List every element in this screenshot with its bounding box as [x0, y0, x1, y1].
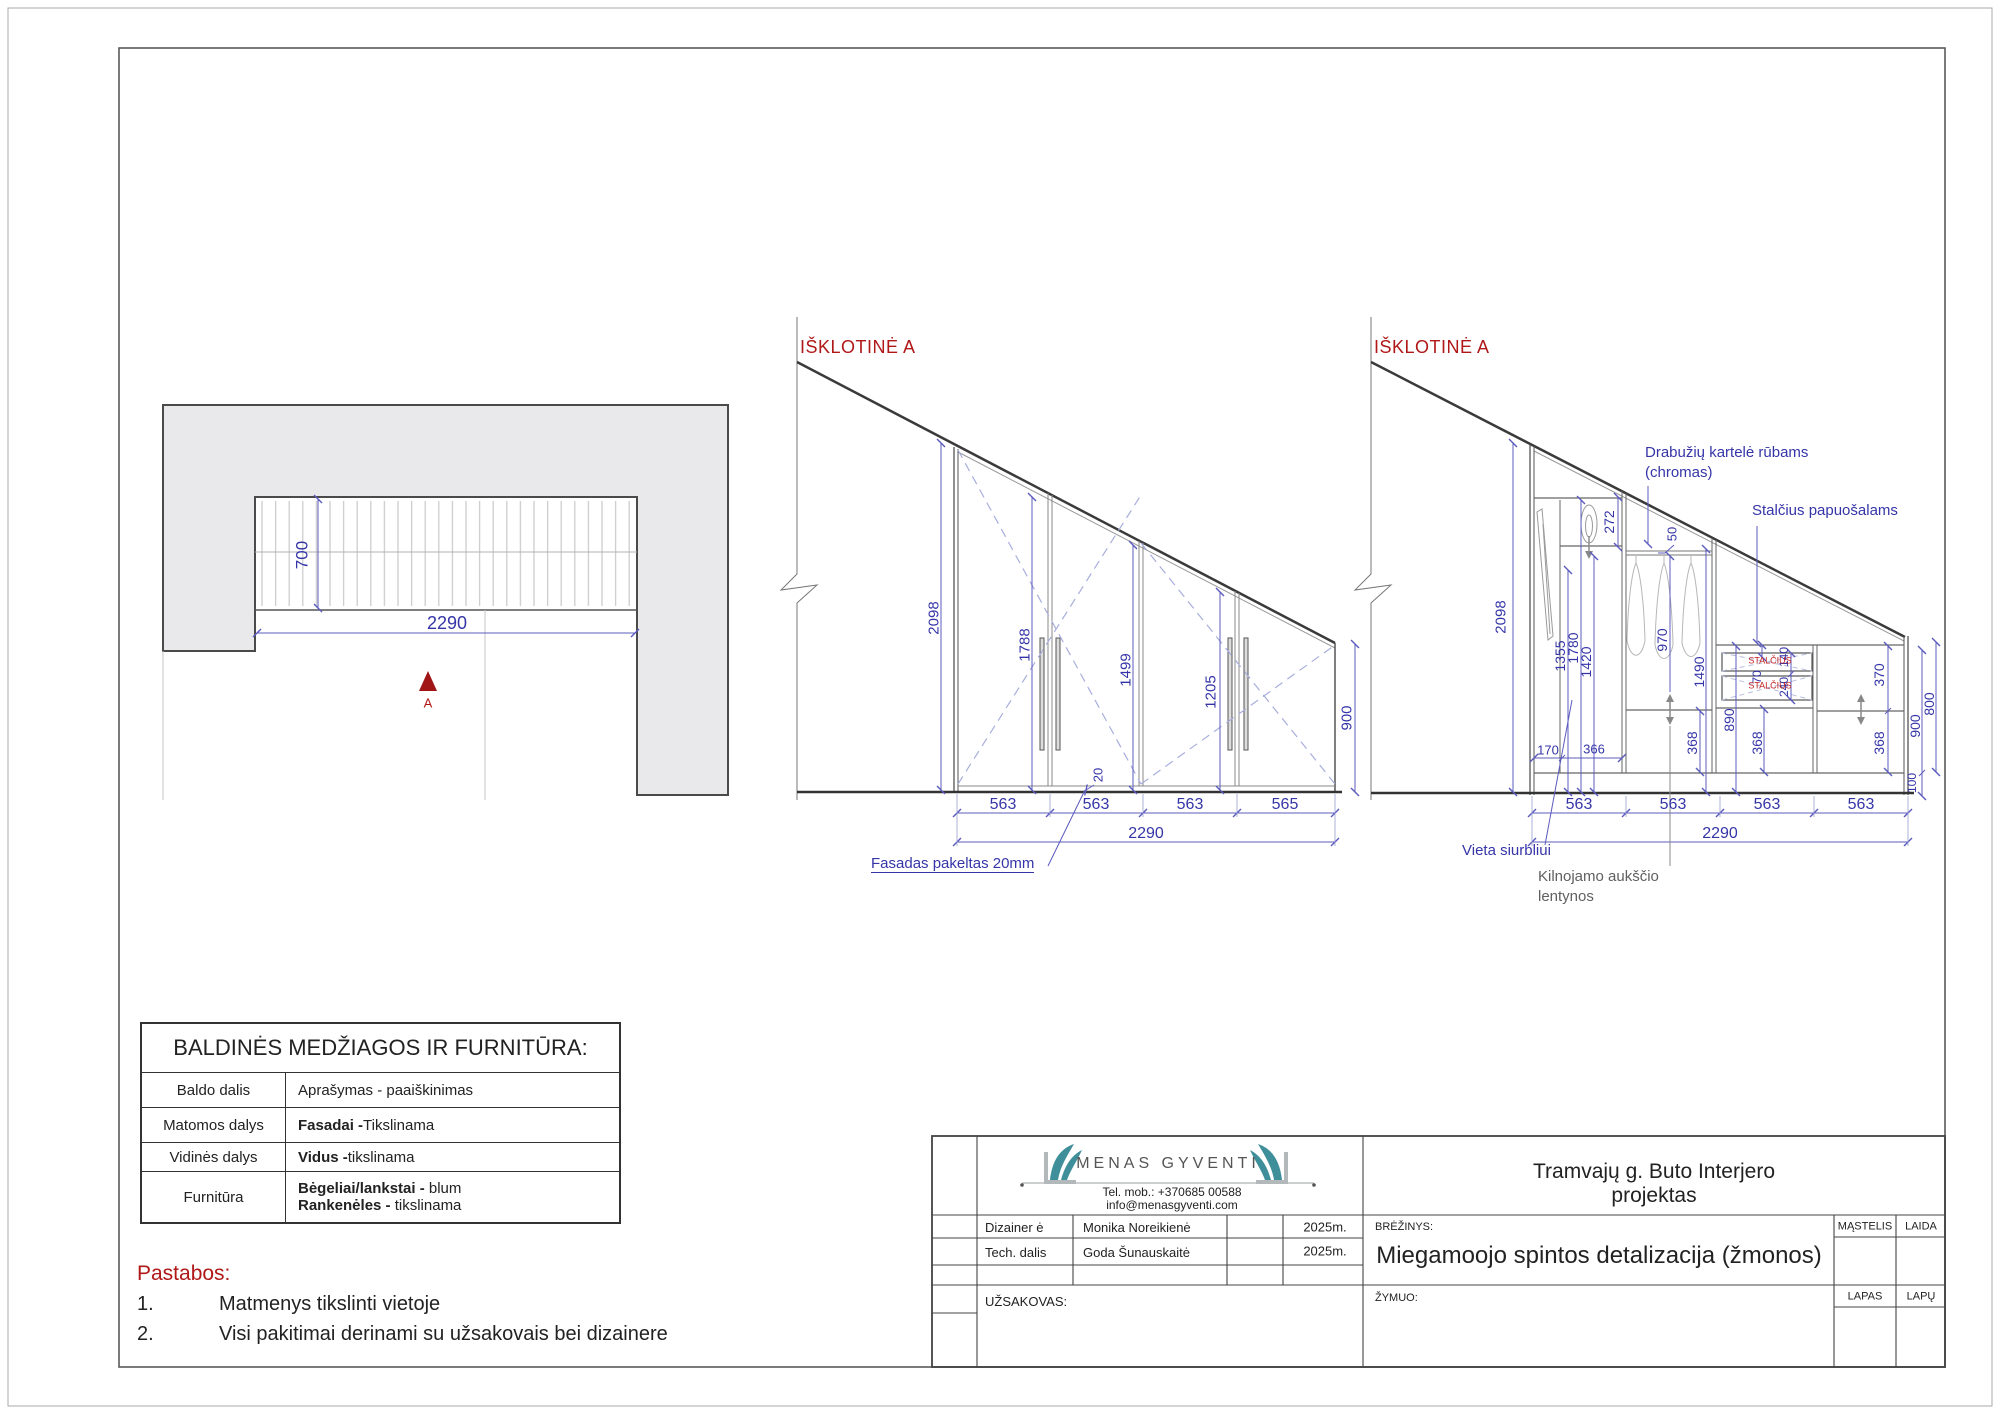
dim-label: 100	[1906, 773, 1918, 793]
dim-label: 20	[1092, 768, 1105, 782]
elevation-facade	[781, 317, 1355, 866]
dim-label: 2290	[1128, 826, 1164, 842]
dim-label: Fasadas pakeltas 20mm	[871, 856, 1034, 873]
dim-label: A	[424, 697, 433, 710]
elevation-interior	[1355, 317, 1936, 866]
elevation-facade-title: IŠKLOTINĖ A	[800, 337, 916, 358]
table-row-part: Matomos dalys	[142, 1108, 286, 1142]
tech-name: Goda Šunauskaitė	[1083, 1246, 1190, 1261]
dim-label: 2098	[927, 601, 942, 634]
note-number: 2.	[137, 1323, 219, 1346]
dim-label: lentynos	[1538, 889, 1594, 904]
dim-label: Kilnojamo aukščio	[1538, 869, 1659, 884]
drawing-label: BRĖŽINYS:	[1375, 1221, 1433, 1234]
table-row-part: Vidinės dalys	[142, 1143, 286, 1171]
dim-label: 563	[1660, 797, 1687, 813]
dim-label: 700	[294, 541, 311, 569]
dim-label: 2098	[1494, 600, 1509, 633]
dim-label: 272	[1602, 510, 1616, 533]
sheet-label: LAPAS	[1848, 1291, 1883, 1304]
sheets-label: LAPŲ	[1907, 1291, 1936, 1304]
designer-label: Dizainer ė	[985, 1221, 1044, 1236]
notes-heading: Pastabos:	[137, 1262, 668, 1286]
designer-name: Monika Noreikienė	[1083, 1221, 1191, 1236]
dim-label: 368	[1750, 731, 1764, 754]
dim-label: 890	[1722, 708, 1736, 731]
project-title-line1: Tramvajų g. Buto Interjero	[1533, 1160, 1775, 1184]
plan-wardrobe-hatch	[256, 497, 636, 610]
dim-label: 1490	[1692, 656, 1706, 687]
dim-label: 970	[1655, 628, 1669, 651]
dim-label: 50	[1666, 527, 1679, 541]
note-number: 1.	[137, 1293, 219, 1316]
dim-label: 563	[1083, 797, 1110, 813]
dim-label: Drabužių kartelė rūbams	[1645, 445, 1808, 460]
dim-label: 563	[1177, 797, 1204, 813]
dim-label: (chromas)	[1645, 465, 1713, 480]
dim-label: 563	[1566, 797, 1593, 813]
door-swing-lines	[958, 450, 1335, 784]
dim-label: STALČIUS	[1748, 657, 1791, 666]
dim-label: 170	[1537, 744, 1559, 757]
dim-label: 1420	[1579, 646, 1593, 677]
dim-label: 1788	[1018, 628, 1033, 661]
table-header-col2: Aprašymas - paaiškinimas	[286, 1073, 619, 1107]
logo-email: info@menasgyventi.com	[1106, 1199, 1238, 1213]
dim-label: 1205	[1204, 675, 1219, 708]
dim-label: Stalčius papuošalams	[1752, 503, 1898, 518]
section-marker-triangle	[419, 671, 437, 691]
dim-label: 370	[1872, 663, 1886, 686]
dim-label: STALČIUS	[1748, 682, 1791, 691]
dim-label: 2290	[1702, 826, 1738, 842]
drawing-sheet: IŠKLOTINĖ A IŠKLOTINĖ A 7002290A 2098178…	[0, 0, 2000, 1414]
materials-table: BALDINĖS MEDŽIAGOS IR FURNITŪRA: Baldo d…	[140, 1022, 621, 1224]
table-row-desc: Fasadai - Tikslinama	[286, 1108, 619, 1142]
designer-year: 2025m.	[1303, 1221, 1346, 1236]
dim-label: 2290	[427, 614, 467, 632]
mark-label: ŽYMUO:	[1375, 1292, 1418, 1305]
dim-label: 800	[1922, 692, 1936, 715]
materials-table-title: BALDINĖS MEDŽIAGOS IR FURNITŪRA:	[142, 1024, 619, 1073]
vacuum-silhouette	[1537, 509, 1553, 640]
client-label: UŽSAKOVAS:	[985, 1295, 1067, 1310]
dim-label: 368	[1872, 731, 1886, 754]
drawing-title: Miegamoojo spintos detalizacija (žmonos)	[1376, 1242, 1822, 1270]
plan-view	[163, 405, 728, 800]
pullout-oval	[1581, 505, 1597, 559]
dim-label: 366	[1583, 743, 1605, 756]
tech-label: Tech. dalis	[985, 1246, 1046, 1261]
table-row-desc: Bėgeliai/lankstai - blum Rankenėles - ti…	[286, 1172, 619, 1222]
dim-label: 563	[1848, 797, 1875, 813]
logo-text: MENAS GYVENTI	[1076, 1155, 1260, 1173]
note-text: Visi pakitimai derinami su užsakovais be…	[219, 1323, 668, 1346]
note-text: Matmenys tikslinti vietoje	[219, 1293, 668, 1316]
dim-label: 900	[1340, 705, 1355, 730]
project-title-line2: projektas	[1611, 1184, 1696, 1208]
dim-label: Vieta siurbliui	[1462, 843, 1551, 858]
dim-label: 1499	[1119, 653, 1134, 686]
dim-label: 563	[1754, 797, 1781, 813]
tech-year: 2025m.	[1303, 1245, 1346, 1260]
dim-label: 900	[1908, 714, 1922, 737]
table-row-part: Furnitūra	[142, 1172, 286, 1222]
issue-label: LAIDA	[1905, 1221, 1937, 1234]
dim-label: 565	[1272, 797, 1299, 813]
elevation-interior-title: IŠKLOTINĖ A	[1374, 337, 1490, 358]
table-row-desc: Vidus - tikslinama	[286, 1143, 619, 1171]
dim-label: 563	[990, 797, 1017, 813]
notes-section: Pastabos: 1. Matmenys tikslinti vietoje …	[137, 1262, 668, 1346]
scale-label: MĄSTELIS	[1838, 1221, 1892, 1234]
dim-label: 368	[1685, 731, 1699, 754]
table-header-col1: Baldo dalis	[142, 1073, 286, 1107]
